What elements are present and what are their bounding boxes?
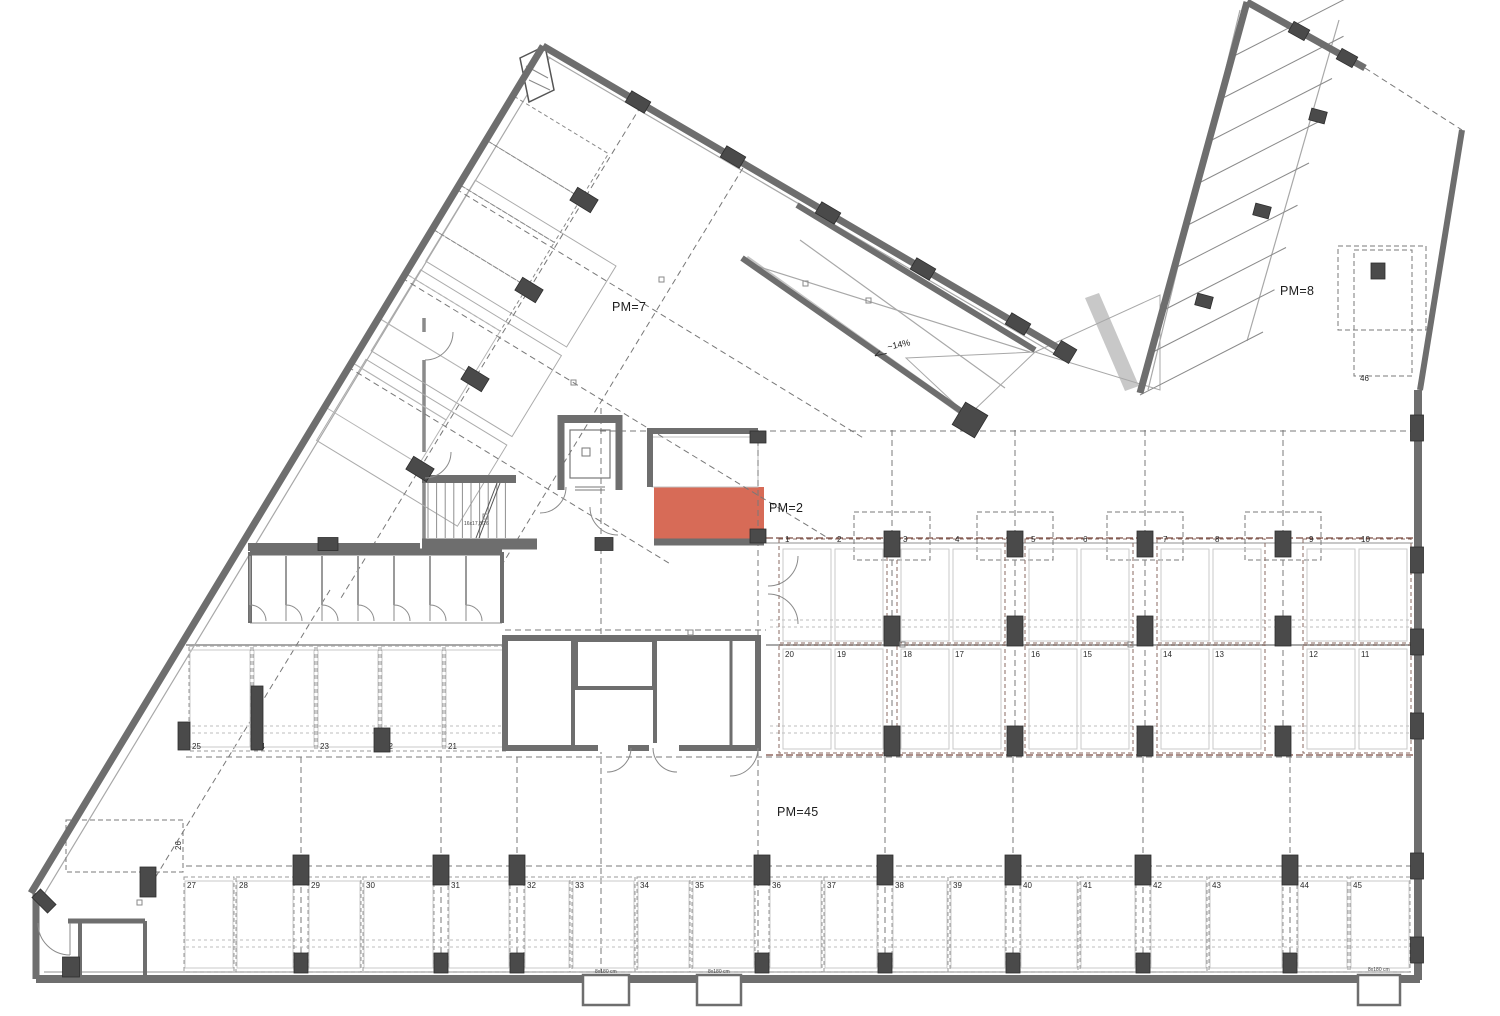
- stall-number: 31: [451, 881, 460, 890]
- parking-floor-plan: 1202193184175166157148139121011252423222…: [0, 0, 1500, 1016]
- car-icon: [834, 885, 869, 966]
- stall-number: 39: [953, 881, 962, 890]
- parking-stalls: 1202193184175166157148139121011252423222…: [184, 0, 1411, 972]
- car-icon: [960, 662, 995, 743]
- car-icon: [1036, 557, 1071, 638]
- stall-number-46: 46: [1360, 374, 1369, 383]
- zone-label-pm7: PM=7: [612, 300, 646, 314]
- stall-number: 38: [895, 881, 904, 890]
- ramp-slope-label: ~14%: [886, 337, 911, 352]
- car-icon: [1314, 662, 1349, 743]
- car-icon: [317, 885, 352, 966]
- car-icon: [395, 659, 430, 740]
- stall-number: 32: [527, 881, 536, 890]
- highlighted-zone: [654, 487, 764, 541]
- car-icon: [1363, 885, 1398, 966]
- stall-number: 25: [192, 742, 201, 751]
- stall-number: 29: [311, 881, 320, 890]
- stall-number-26: 26: [174, 841, 183, 850]
- car-icon: [1088, 557, 1123, 638]
- car-icon: [530, 885, 565, 966]
- car-icon: [203, 659, 238, 740]
- stall-number: 3: [903, 535, 908, 544]
- stall-number: 6: [1083, 535, 1088, 544]
- stall-number: 1: [785, 535, 790, 544]
- zone-label-pm45: PM=45: [777, 805, 818, 819]
- stall-number: 12: [1309, 650, 1318, 659]
- stall-number: 10: [1361, 535, 1370, 544]
- car-icon: [459, 659, 494, 740]
- stall-number: 23: [320, 742, 329, 751]
- stall-number: 19: [837, 650, 846, 659]
- car-icon: [908, 662, 943, 743]
- stall-number: 14: [1163, 650, 1172, 659]
- car-icon: [778, 885, 813, 966]
- car-icon: [1164, 308, 1252, 376]
- car-icon: [1229, 885, 1264, 966]
- car-icon: [1314, 557, 1349, 638]
- stall-number: 8: [1215, 535, 1220, 544]
- stall-number: 13: [1215, 650, 1224, 659]
- stall-number: 21: [448, 742, 457, 751]
- car-icon: [381, 885, 416, 966]
- stall-number: 37: [827, 881, 836, 890]
- car-icon: [1036, 662, 1071, 743]
- car-icon: [706, 885, 741, 966]
- stall-number: 17: [955, 650, 964, 659]
- car-icon: [1187, 223, 1275, 291]
- car-icon: [960, 557, 995, 638]
- zone-label-pm8: PM=8: [1280, 284, 1314, 298]
- car-icon: [961, 885, 996, 966]
- shaft-label-3: 8x180 cm: [1368, 967, 1390, 973]
- car-icon: [331, 659, 366, 740]
- stall-number: 20: [785, 650, 794, 659]
- car-icon: [1032, 885, 1067, 966]
- car-icon: [1168, 662, 1203, 743]
- car-icon: [1220, 662, 1255, 743]
- car-icon: [1221, 97, 1309, 165]
- car-icon: [1088, 662, 1123, 743]
- car-icon: [842, 662, 877, 743]
- floor-plan-page: 1202193184175166157148139121011252423222…: [0, 0, 1500, 1016]
- stall-number: 7: [1163, 535, 1168, 544]
- stall-number: 28: [239, 881, 248, 890]
- stall-number: 16: [1031, 650, 1040, 659]
- car-icon: [790, 662, 825, 743]
- stall-number: 11: [1361, 650, 1370, 659]
- car-icon: [842, 557, 877, 638]
- car-icon: [1233, 54, 1321, 122]
- stall-number: 44: [1300, 881, 1309, 890]
- car-icon: [1161, 885, 1196, 966]
- car-icon: [1370, 281, 1402, 356]
- stall-number: 30: [366, 881, 375, 890]
- stair-label: 16x17,8/26: [464, 521, 489, 527]
- stall-number: 15: [1083, 650, 1092, 659]
- car-icon: [1175, 266, 1263, 334]
- stall-number: 27: [187, 881, 196, 890]
- car-icon: [1366, 557, 1401, 638]
- stall-number: 40: [1023, 881, 1032, 890]
- stall-number: 34: [640, 881, 649, 890]
- car-icon: [1366, 662, 1401, 743]
- car-icon: [908, 557, 943, 638]
- stall-number: 33: [575, 881, 584, 890]
- stall-number: 42: [1153, 881, 1162, 890]
- stall-number: 45: [1353, 881, 1362, 890]
- stall-number: 41: [1083, 881, 1092, 890]
- zone-label-pm2: PM=2: [769, 501, 803, 515]
- car-icon: [646, 885, 681, 966]
- car-icon: [248, 885, 283, 966]
- stall-number: 18: [903, 650, 912, 659]
- car-icon: [661, 441, 744, 476]
- car-icon: [1210, 139, 1298, 207]
- car-icon: [192, 885, 227, 966]
- car-icon: [462, 885, 497, 966]
- car-icon: [1220, 557, 1255, 638]
- car-icon: [267, 659, 302, 740]
- stall-number: 4: [955, 535, 960, 544]
- car-icon: [586, 885, 621, 966]
- car-icon: [82, 828, 163, 863]
- highlighted-parking-space[interactable]: [654, 487, 764, 541]
- shaft-label-2: 8x180 cm: [708, 969, 730, 975]
- shaft-label-1: 8x180 cm: [595, 969, 617, 975]
- stall-number: 2: [837, 535, 842, 544]
- stall-number: 5: [1031, 535, 1036, 544]
- stall-number: 36: [772, 881, 781, 890]
- car-icon: [903, 885, 938, 966]
- car-icon: [1198, 181, 1286, 249]
- car-icon: [1305, 885, 1340, 966]
- car-icon: [1091, 885, 1126, 966]
- car-icon: [1168, 557, 1203, 638]
- stall-number: 43: [1212, 881, 1221, 890]
- stall-number: 9: [1309, 535, 1314, 544]
- stall-number: 35: [695, 881, 704, 890]
